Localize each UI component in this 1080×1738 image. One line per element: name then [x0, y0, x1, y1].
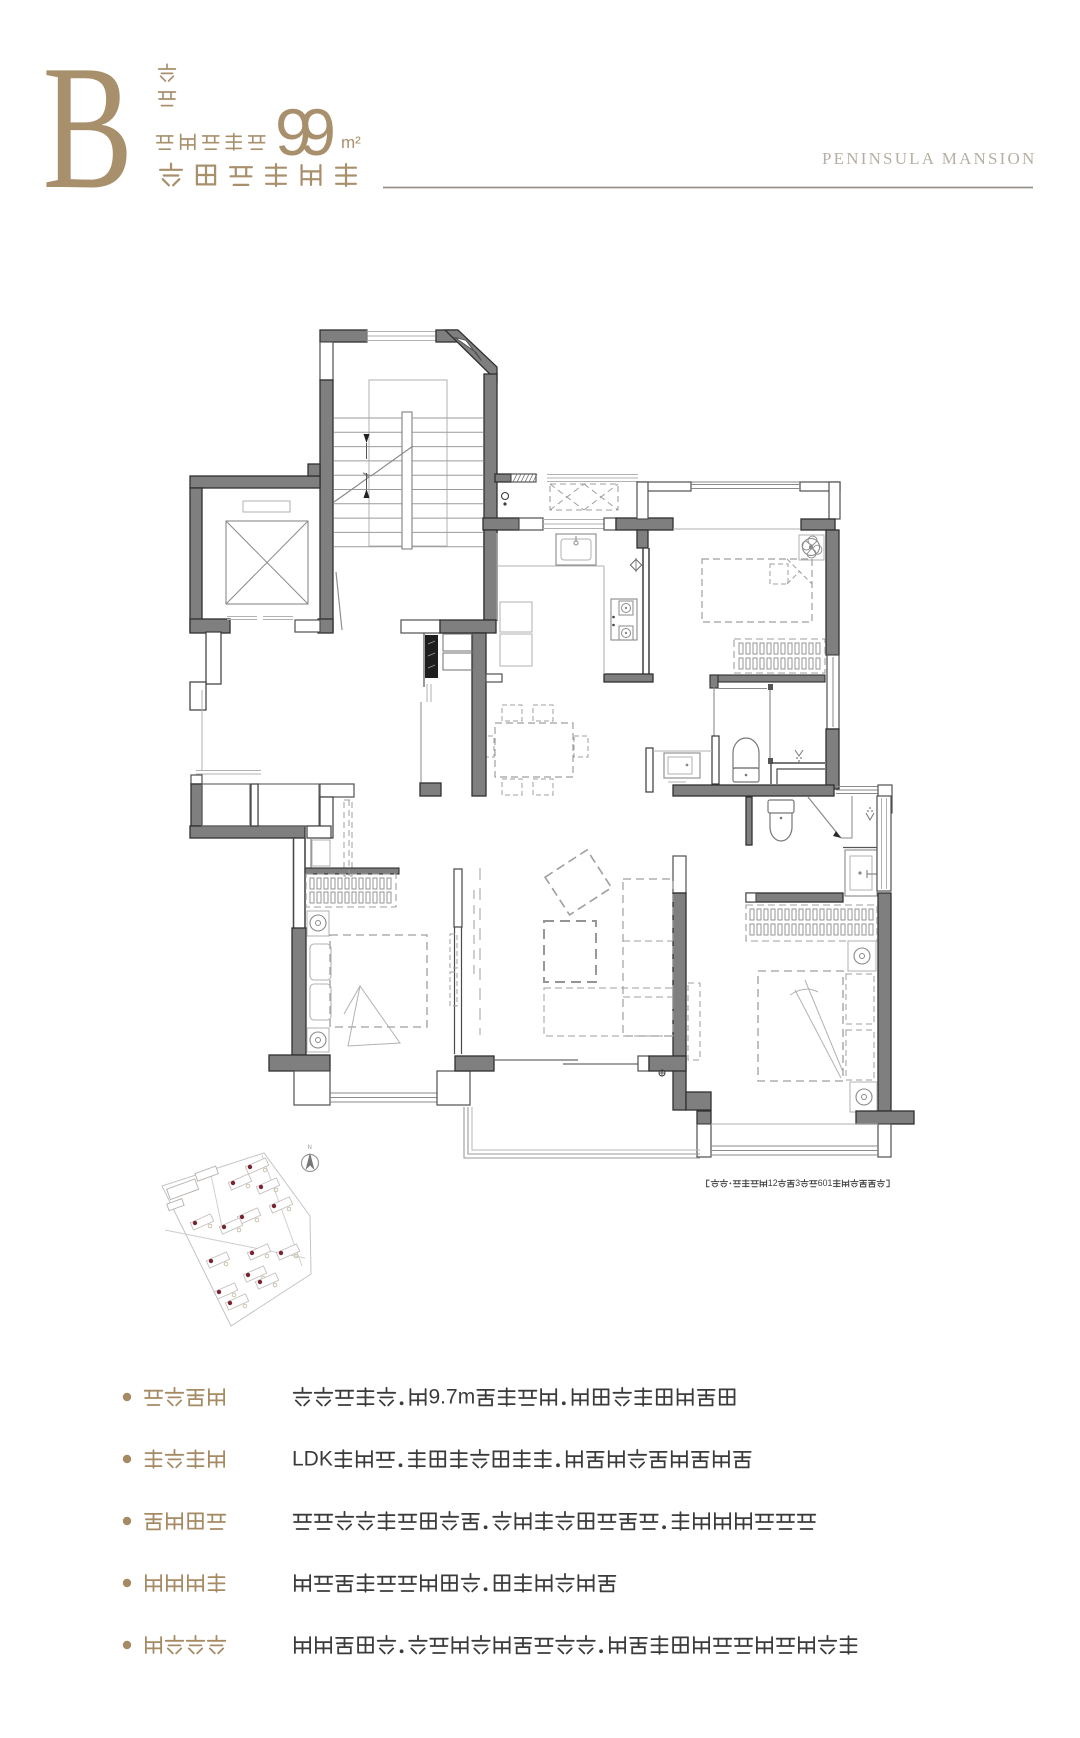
svg-text:m²: m² — [341, 133, 361, 152]
svg-text:N: N — [308, 1145, 312, 1151]
svg-text:PENINSULA MANSION: PENINSULA MANSION — [822, 149, 1037, 168]
svg-text:3: 3 — [795, 1178, 800, 1188]
svg-text:12: 12 — [768, 1178, 778, 1188]
svg-text:601: 601 — [818, 1178, 833, 1188]
svg-text:9.7m: 9.7m — [429, 1386, 476, 1409]
svg-text:B: B — [42, 29, 133, 226]
svg-text:99: 99 — [275, 95, 336, 169]
svg-text:LDK: LDK — [292, 1448, 333, 1471]
